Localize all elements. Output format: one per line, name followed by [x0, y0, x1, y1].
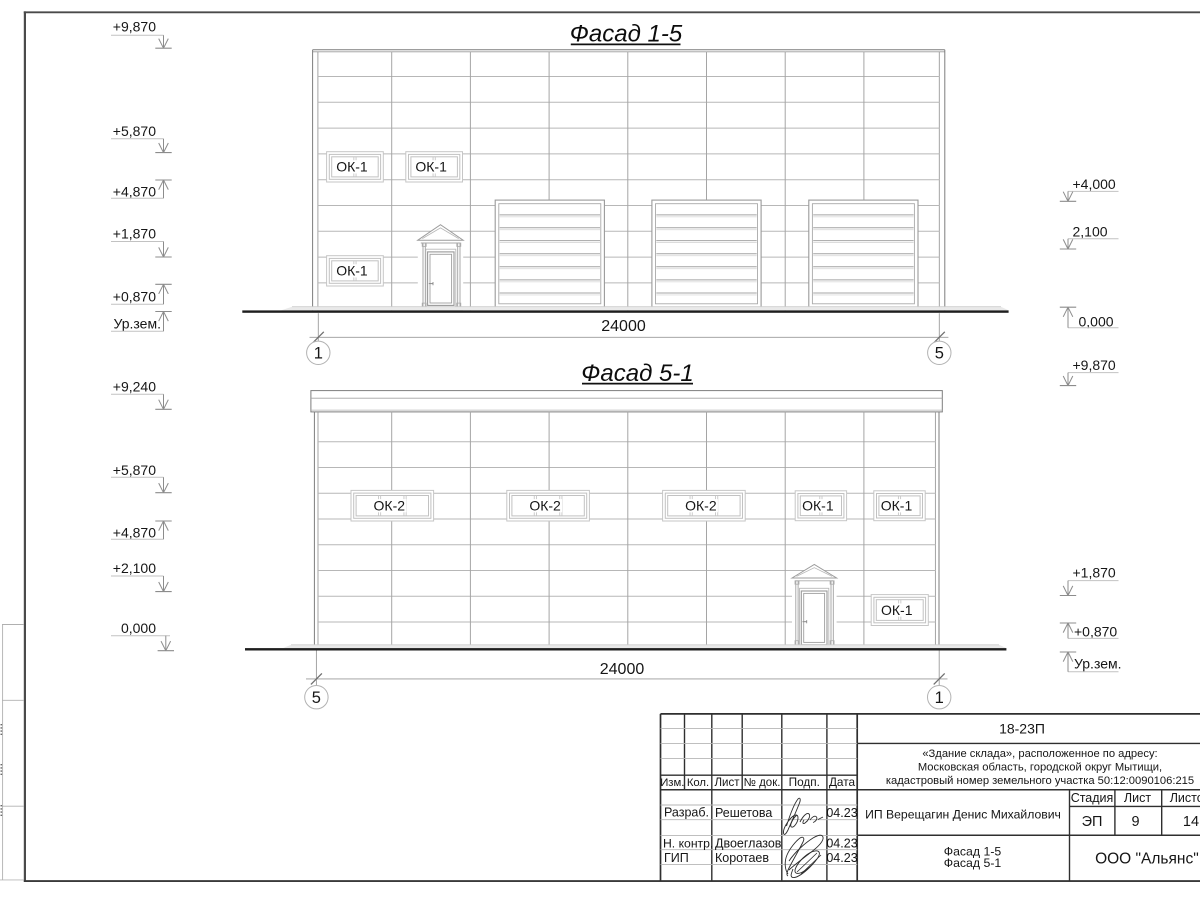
svg-text:+5,870: +5,870 — [113, 123, 156, 139]
svg-text:0,000: 0,000 — [1079, 314, 1114, 330]
svg-text:ОК-1: ОК-1 — [802, 498, 834, 514]
svg-text:ЭП: ЭП — [1082, 814, 1103, 830]
svg-text:04.23: 04.23 — [826, 806, 857, 820]
svg-text:18-23П: 18-23П — [999, 721, 1045, 737]
svg-text:04.23: 04.23 — [826, 837, 857, 851]
svg-text:+1,870: +1,870 — [113, 226, 156, 242]
svg-text:+9,870: +9,870 — [113, 19, 156, 35]
svg-text:24000: 24000 — [601, 318, 646, 335]
svg-text:14: 14 — [1183, 814, 1199, 830]
svg-text:№ док.: № док. — [744, 777, 781, 789]
svg-text:Разраб.: Разраб. — [664, 806, 709, 820]
svg-text:ИП Верещагин Денис Михайлович: ИП Верещагин Денис Михайлович — [865, 808, 1061, 822]
svg-text:+4,000: +4,000 — [1073, 176, 1116, 192]
svg-text:Стадия: Стадия — [1071, 791, 1114, 805]
svg-text:ОК-2: ОК-2 — [529, 498, 561, 514]
svg-text:Н. контр.: Н. контр. — [663, 837, 713, 851]
svg-text:ООО "Альянс": ООО "Альянс" — [1095, 850, 1199, 867]
svg-text:Фасад 1-5: Фасад 1-5 — [570, 21, 683, 48]
svg-text:+9,240: +9,240 — [113, 379, 156, 395]
svg-text:+5,870: +5,870 — [113, 462, 156, 478]
svg-text:+2,100: +2,100 — [113, 560, 156, 576]
svg-text:Двоеглазов: Двоеглазов — [715, 837, 782, 851]
svg-text:Лист: Лист — [1124, 791, 1151, 805]
svg-text:«Здание склада», расположенное: «Здание склада», расположенное по адресу… — [922, 748, 1157, 760]
svg-text:ОК-1: ОК-1 — [336, 159, 368, 175]
svg-text:2,100: 2,100 — [1073, 224, 1108, 240]
svg-text:24000: 24000 — [600, 661, 645, 678]
svg-text:Изм.: Изм. — [660, 777, 684, 789]
svg-text:1: 1 — [935, 689, 944, 707]
svg-text:ОК-1: ОК-1 — [415, 159, 447, 175]
svg-text:1: 1 — [314, 345, 323, 363]
svg-text:Дата: Дата — [829, 775, 856, 789]
svg-text:Решетова: Решетова — [715, 806, 772, 820]
svg-text:+4,870: +4,870 — [113, 184, 156, 200]
svg-text:+0,870: +0,870 — [1074, 624, 1117, 640]
svg-text:5: 5 — [312, 689, 321, 707]
svg-text:ОК-1: ОК-1 — [336, 263, 368, 279]
svg-text:Кол.: Кол. — [687, 777, 709, 789]
svg-text:ОК-1: ОК-1 — [881, 498, 913, 514]
svg-text:Подп.: Подп. — [789, 775, 820, 789]
svg-text:04.23: 04.23 — [826, 851, 857, 865]
svg-text:Фасад 5-1: Фасад 5-1 — [944, 856, 1002, 870]
svg-text:+1,870: +1,870 — [1073, 565, 1116, 581]
svg-text:Ур.зем.: Ур.зем. — [1074, 656, 1122, 672]
svg-text:ГИП: ГИП — [664, 851, 689, 865]
svg-text:0,000: 0,000 — [121, 620, 156, 636]
svg-text:Лист: Лист — [715, 777, 741, 789]
svg-text:кадастровый номер земельного у: кадастровый номер земельного участка 50:… — [886, 775, 1194, 787]
svg-text:Коротаев: Коротаев — [715, 851, 769, 865]
svg-text:ОК-1: ОК-1 — [881, 602, 913, 618]
svg-text:5: 5 — [935, 345, 944, 363]
svg-text:9: 9 — [1131, 814, 1139, 830]
svg-text:+4,870: +4,870 — [113, 525, 156, 541]
svg-text:Ур.зем.: Ур.зем. — [113, 316, 161, 332]
svg-text:+0,870: +0,870 — [113, 288, 156, 304]
svg-text:+9,870: +9,870 — [1073, 357, 1116, 373]
svg-text:ОК-2: ОК-2 — [685, 498, 717, 514]
svg-text:Московская область, городской: Московская область, городской округ Мыти… — [918, 762, 1162, 774]
svg-text:ОК-2: ОК-2 — [374, 498, 406, 514]
svg-text:Листов: Листов — [1170, 791, 1200, 805]
